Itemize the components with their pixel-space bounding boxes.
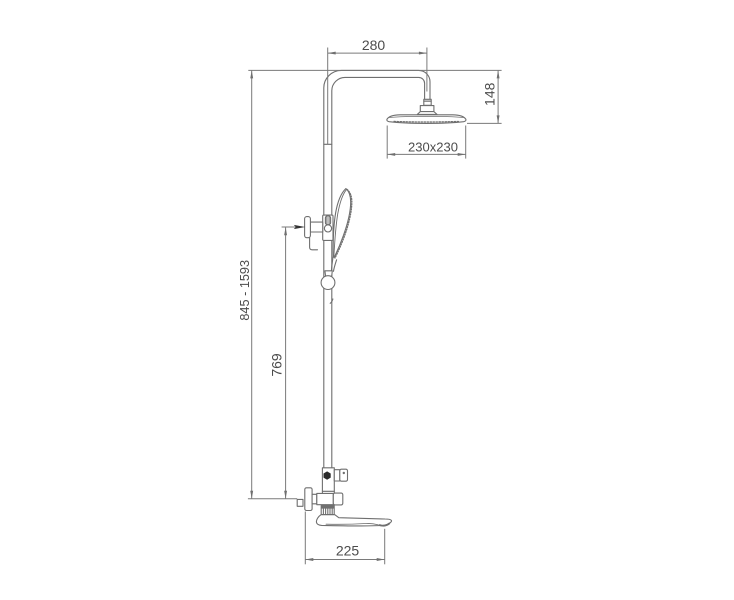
svg-text:148: 148	[482, 82, 498, 106]
svg-text:280: 280	[362, 37, 386, 53]
svg-text:230x230: 230x230	[408, 139, 458, 154]
svg-text:845 - 1593: 845 - 1593	[238, 260, 252, 321]
svg-text:225: 225	[336, 542, 360, 558]
svg-text:769: 769	[268, 353, 284, 377]
